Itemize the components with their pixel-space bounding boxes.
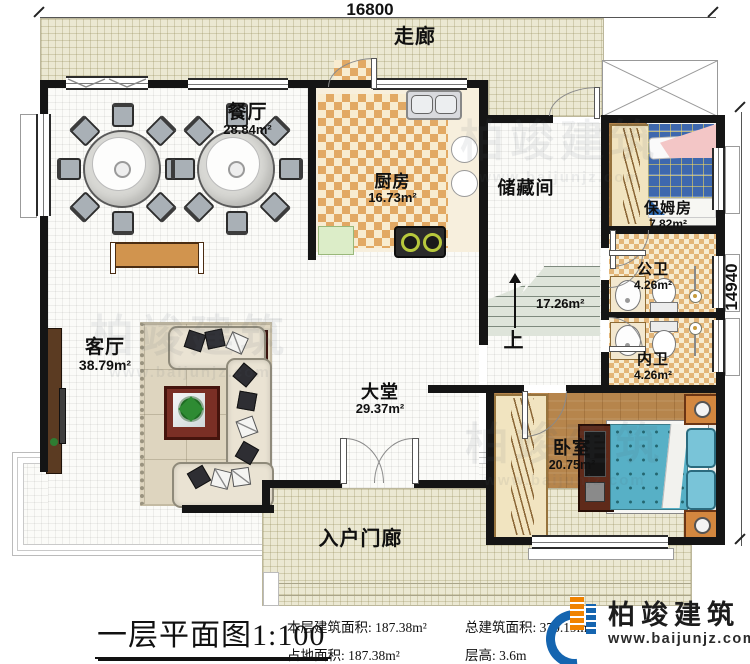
cushion: [204, 328, 225, 349]
stairs-up-text: 上: [494, 330, 534, 352]
window: [188, 78, 288, 90]
shower-head: [689, 322, 702, 335]
dimension-tick: [33, 6, 44, 17]
wall-segment: [262, 480, 270, 513]
brand-logo: 柏竣建筑 www.baijunjz.com: [546, 594, 750, 654]
entry-door-leaf-right: [412, 438, 419, 484]
room-name: 餐厅: [205, 102, 290, 123]
window-sill: [20, 114, 37, 218]
plan-title-text: 一层平面图: [97, 619, 252, 652]
brand-text-block: 柏竣建筑 www.baijunjz.com: [608, 601, 750, 647]
room-name: 卧室: [532, 438, 612, 458]
floor-plan: 16800 14940: [0, 0, 750, 664]
room-area: 4.26m²: [618, 369, 688, 382]
window-sill: [528, 548, 674, 560]
room-area: 29.37m²: [335, 402, 425, 417]
room-name: 保姆房: [628, 201, 708, 218]
stairs-up-label: 上: [494, 330, 534, 352]
corridor-walkway: [40, 18, 604, 82]
shower-head: [689, 290, 702, 303]
xbox-diagonals: [603, 61, 717, 116]
stove: [394, 226, 446, 258]
wall-segment: [308, 88, 316, 260]
window: [712, 148, 725, 210]
dimension-tick: [734, 101, 745, 112]
storage-door-leaf: [594, 87, 600, 119]
stat-item: 本层建筑面积: 187.38m²: [287, 616, 455, 636]
dimension-tick: [734, 533, 745, 544]
pillow: [686, 428, 716, 468]
stat-value: 3.6m: [499, 648, 526, 663]
room-area: 20.75m²: [532, 458, 612, 472]
sideboard-end: [198, 242, 204, 274]
room-name: 走廊: [370, 26, 460, 48]
room-label-public-bath: 公卫 4.26m²: [618, 262, 688, 292]
room-label-private-bath: 内卫 4.26m²: [618, 352, 688, 382]
wall-segment: [479, 88, 488, 345]
kitchen-window: [373, 78, 467, 90]
room-name: 公卫: [618, 262, 688, 279]
stat-value: 187.38m²: [375, 620, 427, 635]
porch-notch: [263, 572, 279, 606]
stairs-arrow-line: [514, 282, 516, 328]
sideboard: [112, 242, 202, 268]
kitchen-sink: [406, 90, 462, 120]
window: [36, 114, 51, 216]
wall-segment: [479, 115, 553, 123]
room-name: 入户门廊: [288, 528, 433, 550]
pillow: [686, 470, 716, 510]
dimension-top: 16800: [280, 0, 460, 20]
room-label-hall: 大堂 29.37m²: [335, 382, 425, 417]
wall-segment: [601, 385, 725, 393]
wall-segment: [182, 505, 274, 513]
stairs-area-label: 17.26m²: [536, 297, 601, 312]
chair: [226, 211, 248, 235]
room-name: 客厅: [60, 337, 150, 358]
wall-segment: [601, 234, 609, 248]
casement-window: [66, 76, 148, 90]
brand-website: www.baijunjz.com: [608, 631, 750, 647]
wall-segment: [601, 280, 609, 320]
room-label-porch: 入户门廊: [288, 528, 433, 550]
dimension-tick: [707, 6, 718, 17]
wall-segment: [601, 115, 609, 235]
wall-segment: [486, 385, 494, 545]
porch-step-line: [263, 583, 691, 584]
cutting-board: [318, 226, 354, 255]
room-label-storage: 储藏间: [486, 178, 566, 198]
tv-screen: [59, 388, 66, 444]
room-name: 厨房: [350, 172, 435, 191]
room-label-nanny: 保姆房 7.82m²: [628, 201, 708, 231]
wall-segment: [428, 385, 490, 393]
stairs-arrow-head: [509, 273, 521, 283]
wall-segment: [490, 537, 534, 545]
kitchen-door-leaf: [371, 58, 377, 89]
stat-value: 187.38m²: [348, 648, 400, 663]
platform-xbox: [602, 60, 718, 117]
room-area: 38.79m²: [60, 358, 150, 374]
room-label-corridor: 走廊: [370, 26, 460, 48]
room-area: 4.26m²: [618, 279, 688, 292]
wall-segment: [666, 537, 725, 545]
counter-basin: [451, 170, 478, 197]
wall-segment: [609, 312, 717, 318]
room-area: 16.73m²: [350, 191, 435, 206]
chair: [279, 158, 303, 180]
room-name: 大堂: [335, 382, 425, 402]
sideboard-end: [110, 242, 116, 274]
room-name: 内卫: [618, 352, 688, 369]
cushion: [231, 467, 251, 487]
wall-segment: [601, 352, 609, 385]
stat-item: 占地面积: 187.38m²: [287, 644, 455, 664]
room-label-bedroom: 卧室 20.75m²: [532, 438, 612, 472]
window-sill: [725, 146, 740, 214]
chair: [171, 158, 195, 180]
stat-label: 本层建筑面积:: [287, 620, 372, 635]
room-label-kitchen: 厨房 16.73m²: [350, 172, 435, 206]
bedroom-window: [532, 535, 668, 549]
shower-stem: [694, 266, 696, 292]
chair: [112, 211, 134, 235]
room-label-dining: 餐厅 28.84m²: [205, 102, 290, 138]
stat-label: 占地面积:: [287, 648, 345, 663]
dining-table-2: [197, 130, 275, 208]
stat-label: 层高:: [465, 648, 496, 663]
wall-segment: [601, 115, 725, 123]
chair: [57, 158, 81, 180]
public-bath-door-leaf: [609, 250, 646, 256]
chair: [112, 103, 134, 127]
room-area: 7.82m²: [628, 218, 708, 231]
counter-basin: [451, 136, 478, 163]
brand-building-icon: [546, 594, 602, 654]
dining-table-1: [83, 130, 161, 208]
wall-segment: [262, 480, 342, 488]
room-area: 17.26m²: [536, 297, 601, 312]
bedroom-door-leaf: [522, 391, 528, 439]
casement-glyphs: [66, 78, 148, 88]
stat-label: 总建筑面积:: [465, 620, 536, 635]
room-name: 储藏间: [486, 178, 566, 198]
brand-name: 柏竣建筑: [608, 601, 750, 631]
entry-door-leaf-left: [340, 438, 347, 484]
decor-plant-small: [50, 438, 58, 446]
dimension-right: 14940: [722, 232, 742, 342]
wall-segment: [414, 480, 494, 488]
wall-segment: [486, 385, 524, 393]
cushion: [237, 391, 258, 412]
room-label-living: 客厅 38.79m²: [60, 337, 150, 374]
room-area: 28.84m²: [205, 123, 290, 138]
